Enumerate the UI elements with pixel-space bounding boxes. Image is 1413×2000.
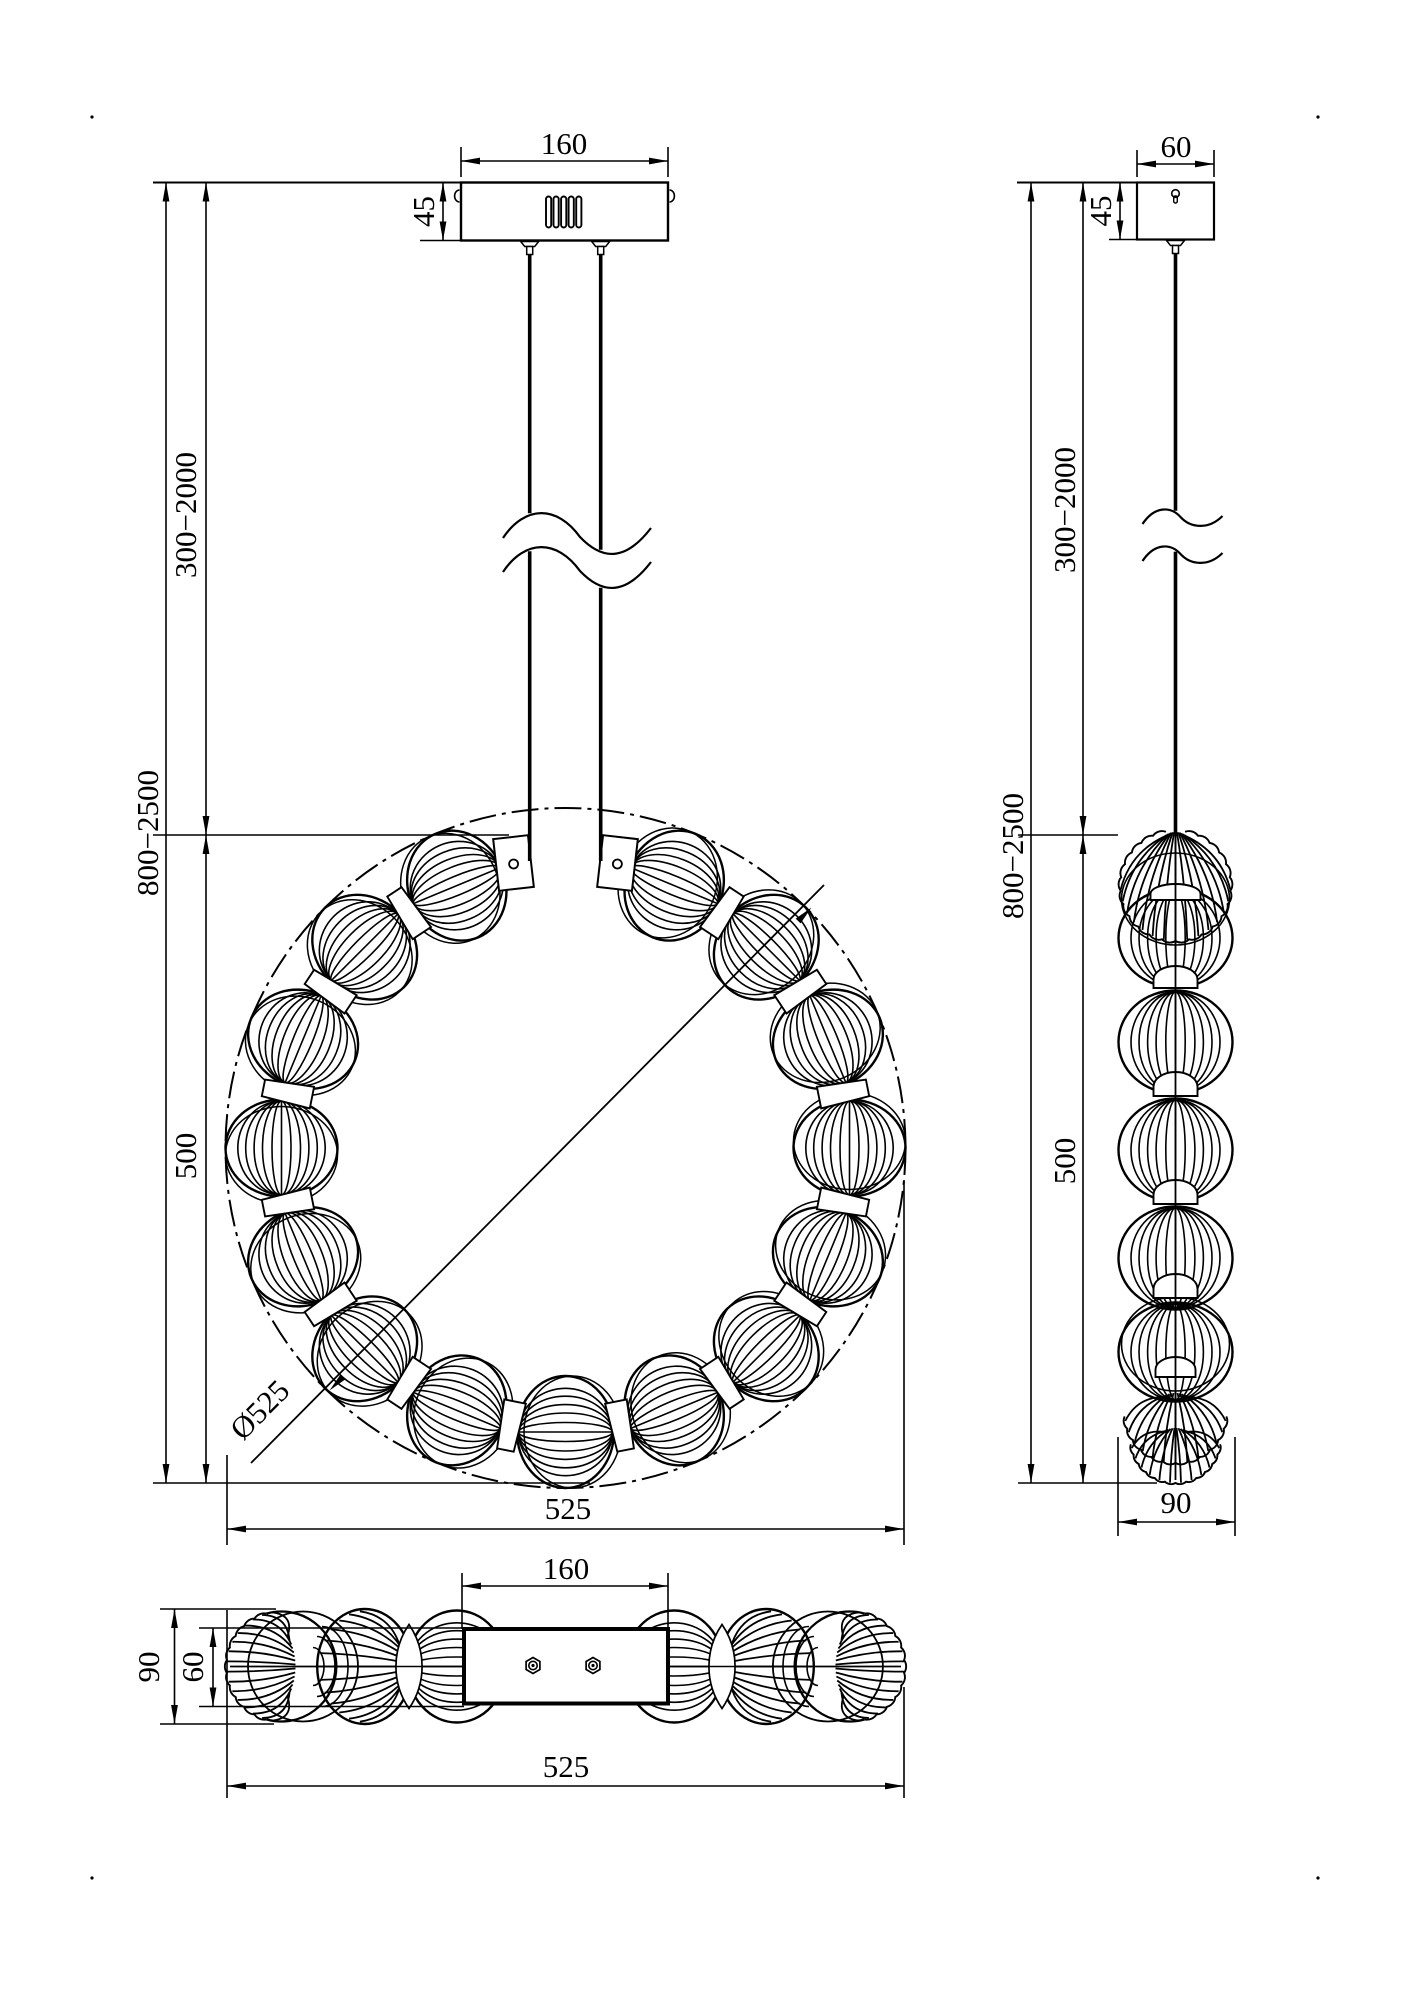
svg-text:160: 160 <box>541 126 588 161</box>
svg-text:800−2500: 800−2500 <box>130 770 165 896</box>
svg-text:800−2500: 800−2500 <box>995 793 1030 919</box>
svg-text:525: 525 <box>545 1491 592 1526</box>
svg-text:500: 500 <box>1047 1138 1082 1185</box>
svg-text:45: 45 <box>406 196 441 227</box>
svg-text:60: 60 <box>175 1652 210 1683</box>
svg-text:525: 525 <box>543 1749 590 1784</box>
svg-text:60: 60 <box>1161 129 1192 164</box>
svg-text:90: 90 <box>131 1652 166 1683</box>
svg-text:160: 160 <box>543 1551 590 1586</box>
svg-text:500: 500 <box>168 1133 203 1180</box>
svg-text:45: 45 <box>1083 196 1118 227</box>
svg-text:90: 90 <box>1161 1485 1192 1520</box>
svg-text:300−2000: 300−2000 <box>168 452 203 578</box>
svg-text:300−2000: 300−2000 <box>1047 447 1082 573</box>
